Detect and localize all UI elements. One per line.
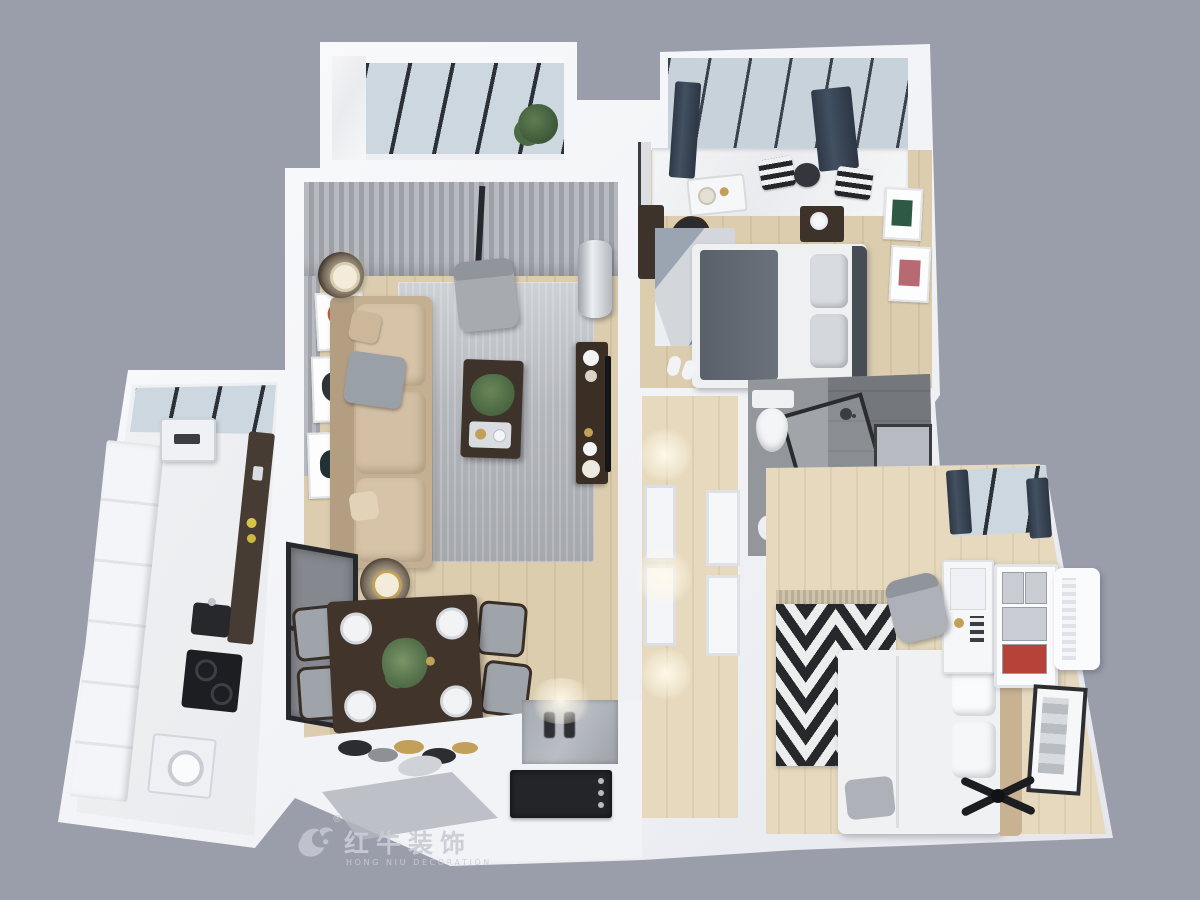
bedroom1-window <box>668 58 908 150</box>
render-canvas: ® 红牛装饰 HONG NIU DECORATION <box>0 0 1200 900</box>
tray-cup-1 <box>475 428 486 439</box>
burner-2 <box>210 682 234 706</box>
tv-screen <box>605 356 611 472</box>
bedroom2-art-frame <box>1026 684 1087 796</box>
art-rose-inner <box>898 259 920 286</box>
sofa-pillow-1 <box>347 309 383 345</box>
door-handle-2 <box>598 790 604 796</box>
ceiling-light-3 <box>640 648 692 700</box>
bull-icon <box>292 820 338 868</box>
nightstand-flowers <box>810 212 828 230</box>
sink-faucet <box>207 598 216 607</box>
balcony-marble-wall <box>332 56 366 160</box>
sofa-pillow-2 <box>348 490 380 522</box>
dining-centerpiece-plant <box>381 637 430 689</box>
bed1-pillow-1 <box>810 254 848 308</box>
place-setting-1 <box>339 612 373 646</box>
entry-door <box>510 770 612 818</box>
shower-head <box>840 408 852 420</box>
table-tray <box>469 421 512 448</box>
bed1-pillow-2 <box>810 314 848 368</box>
bedroom1-bed <box>692 244 867 388</box>
console-decor-3 <box>584 428 593 437</box>
door-handle-1 <box>598 778 604 784</box>
floor-ac-unit <box>578 240 612 318</box>
decor-plate-5 <box>452 742 478 754</box>
bedroom2-ac-unit <box>1054 568 1100 670</box>
sofa-throw-blanket <box>343 350 408 410</box>
brand-name-en: HONG NIU DECORATION <box>346 858 492 867</box>
round-cushion-dark <box>794 163 820 187</box>
bed1-gray-blanket <box>700 250 778 380</box>
place-setting-2 <box>435 607 469 641</box>
bedroom2-curtain-left <box>946 469 972 534</box>
registered-mark: ® <box>332 814 342 825</box>
bedroom1-curtain-right <box>811 86 859 172</box>
tray-cup <box>719 187 729 197</box>
balcony <box>332 56 564 160</box>
bed2-throw <box>844 776 896 821</box>
ceiling-fan-hub <box>991 789 1005 803</box>
bedroom1-nightstand <box>800 206 844 242</box>
hallway-panel-right-1 <box>706 490 740 566</box>
shelf-cell-1 <box>1002 572 1024 604</box>
hallway-panel-right-2 <box>706 575 740 656</box>
shelf-cell-4 <box>1002 644 1047 674</box>
desk-lamp <box>954 618 964 628</box>
dining-table <box>327 594 484 734</box>
pantry-item-lemon-1 <box>246 517 257 528</box>
balcony-rail <box>366 56 564 63</box>
door-handle-3 <box>598 802 604 808</box>
watermark: ® 红牛装饰 HONG NIU DECORATION <box>292 812 512 882</box>
balcony-plant <box>518 104 558 144</box>
coffee-table <box>460 359 523 459</box>
kitchen-sink <box>190 602 231 638</box>
shelf-cell-2 <box>1025 572 1047 604</box>
place-setting-3 <box>343 690 377 724</box>
art-green-inner <box>891 199 912 226</box>
console-decor-1 <box>583 350 599 366</box>
brand-name-cn: 红牛装饰 <box>344 824 472 860</box>
chevron-strip-2 <box>806 604 836 766</box>
ceiling-light-1 <box>638 428 692 482</box>
console-decor-2 <box>585 370 597 382</box>
shelf-cell-3 <box>1002 607 1047 641</box>
tv-console <box>576 342 608 484</box>
decor-plate-1 <box>338 740 372 756</box>
table-lamp-bottom <box>372 570 402 600</box>
place-setting-4 <box>439 685 473 719</box>
pantry-item-lemon-2 <box>246 534 256 544</box>
bed1-headboard <box>852 246 867 386</box>
console-decor-4 <box>583 442 597 456</box>
pantry-item-jar <box>252 466 263 481</box>
tray-plate <box>697 186 717 206</box>
dining-chair-3 <box>476 600 529 658</box>
desk-pegboard <box>950 568 986 610</box>
dining-gold-decor <box>426 656 435 665</box>
toilet <box>752 390 794 408</box>
ac-vent <box>1062 578 1076 660</box>
bedroom1-art-green <box>883 187 924 241</box>
ceiling-light-2 <box>634 548 692 606</box>
bed2-pillow-2 <box>952 722 996 778</box>
kitchen-oven <box>147 733 217 799</box>
console-decor-5 <box>582 460 600 478</box>
table-plant <box>470 373 515 417</box>
heater-slot <box>174 434 200 444</box>
bedroom2-desk <box>942 560 994 674</box>
oven-pot <box>166 749 206 789</box>
striped-pillow-2 <box>834 166 874 201</box>
burner-1 <box>194 658 218 682</box>
bedroom2-shelving <box>994 564 1058 688</box>
chevron-rug-fringe <box>776 590 896 604</box>
table-lamp-top <box>330 262 360 292</box>
breakfast-tray <box>686 173 748 217</box>
bedroom1-art-rose <box>889 245 932 303</box>
art-frame-inner <box>1038 697 1069 775</box>
chevron-strip-1 <box>776 604 806 766</box>
desk-books <box>970 616 984 642</box>
decor-plate-2 <box>368 748 398 762</box>
decor-plate-3 <box>394 740 424 754</box>
sofa <box>330 296 432 568</box>
armchair <box>453 257 520 333</box>
kitchen-cooktop <box>181 649 243 713</box>
striped-pillow-1 <box>758 155 797 190</box>
kitchen-water-heater <box>160 418 216 462</box>
bedroom2-curtain-right <box>1026 477 1052 538</box>
bed2-fold-line <box>896 656 899 828</box>
tray-cup-2 <box>493 429 506 442</box>
entry-light <box>528 678 594 724</box>
